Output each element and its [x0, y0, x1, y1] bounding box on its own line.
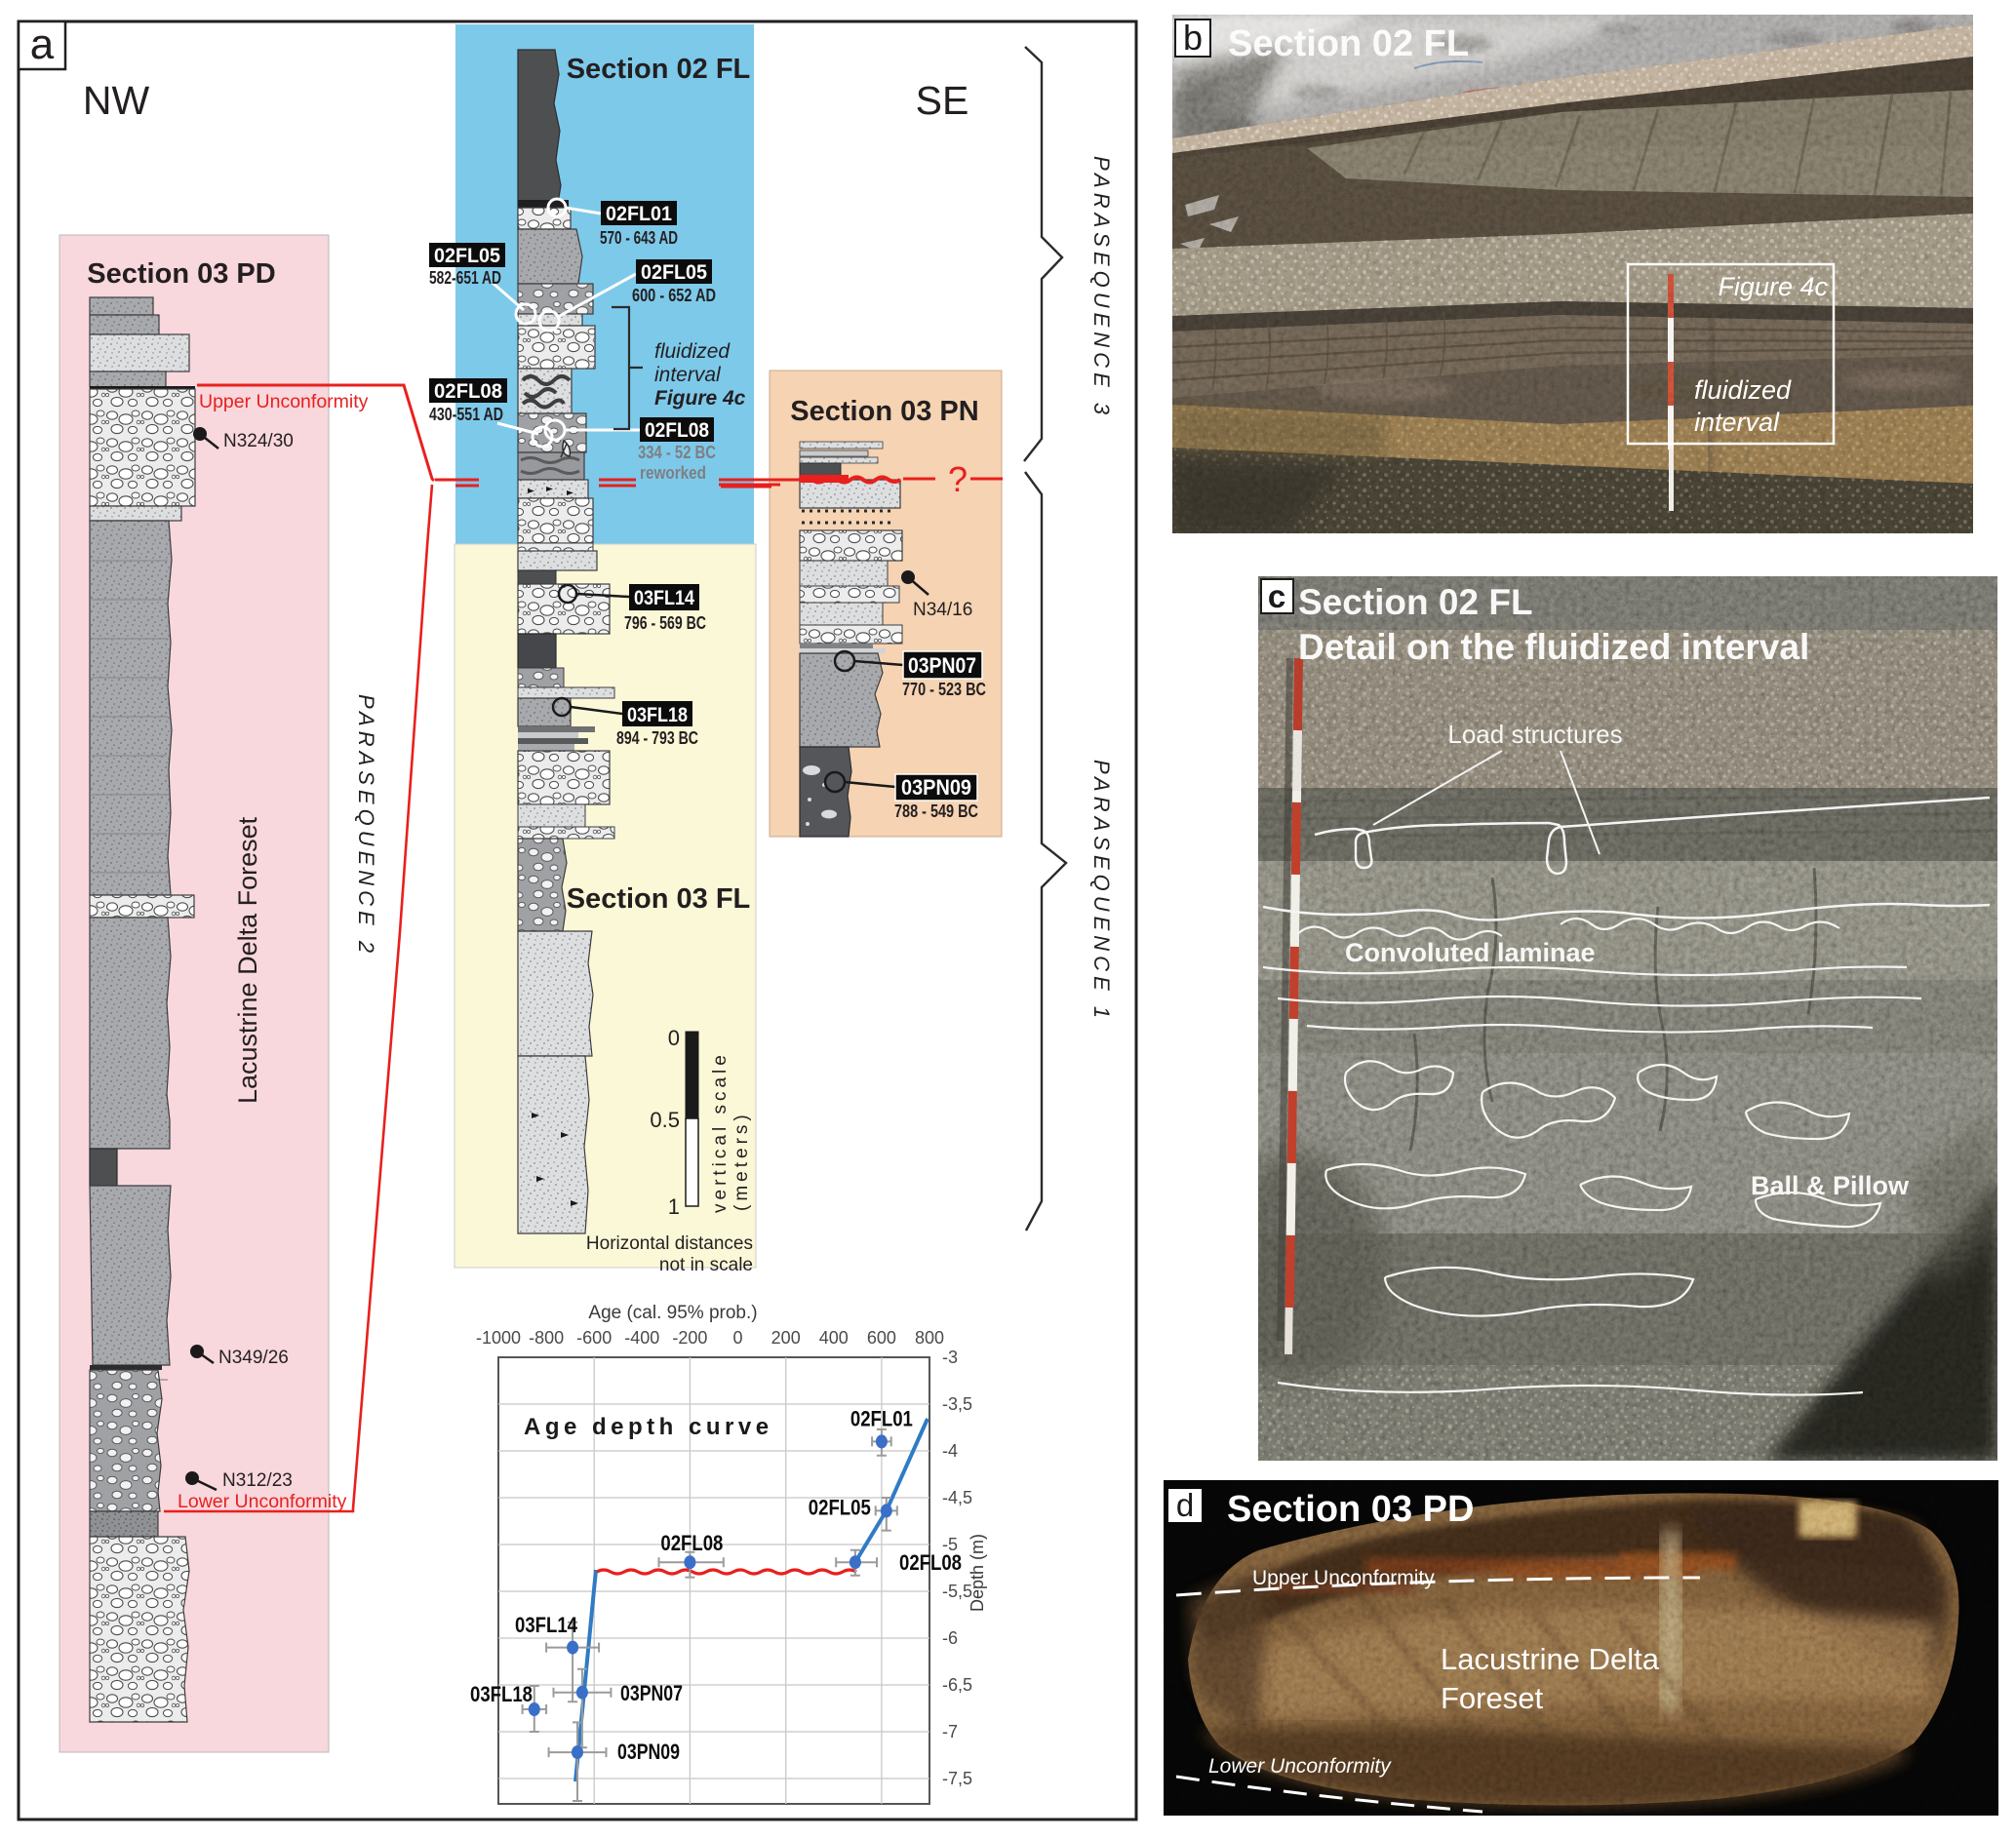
svg-text:03FL14: 03FL14 [634, 587, 694, 609]
svg-text:788 - 549 BC: 788 - 549 BC [894, 802, 978, 821]
svg-text:-3: -3 [942, 1348, 958, 1367]
svg-text:Lower Unconformity: Lower Unconformity [1208, 1755, 1392, 1778]
svg-text:N34/16: N34/16 [913, 600, 972, 620]
svg-text:N324/30: N324/30 [223, 431, 294, 451]
svg-text:Lacustrine Delta Foreset: Lacustrine Delta Foreset [233, 816, 262, 1104]
svg-text:02FL08: 02FL08 [434, 380, 502, 403]
svg-text:reworked: reworked [640, 463, 706, 483]
svg-text:-3,5: -3,5 [942, 1394, 972, 1414]
svg-text:Upper Unconformity: Upper Unconformity [199, 391, 369, 412]
svg-text:430-551 AD: 430-551 AD [429, 405, 503, 424]
svg-text:d: d [1176, 1487, 1194, 1523]
svg-text:Figure 4c: Figure 4c [654, 387, 746, 410]
svg-text:Foreset: Foreset [1441, 1681, 1543, 1715]
svg-text:Age depth curve: Age depth curve [524, 1414, 773, 1440]
svg-text:Section 03 PN: Section 03 PN [790, 396, 978, 427]
svg-text:(meters): (meters) [731, 1111, 752, 1211]
svg-text:0: 0 [668, 1026, 680, 1050]
svg-text:a: a [30, 20, 55, 68]
svg-text:02FL01: 02FL01 [606, 203, 672, 225]
svg-text:Section 02 FL: Section 02 FL [567, 54, 751, 85]
svg-text:03PN07: 03PN07 [908, 653, 976, 678]
svg-text:PARASEQUENCE 3: PARASEQUENCE 3 [1089, 156, 1114, 419]
svg-text:-400: -400 [624, 1328, 659, 1348]
svg-text:02FL05: 02FL05 [641, 261, 707, 284]
svg-text:Age (cal. 95% prob.): Age (cal. 95% prob.) [588, 1303, 757, 1323]
svg-text:Horizontal distances: Horizontal distances [586, 1233, 753, 1254]
svg-text:b: b [1183, 18, 1203, 58]
svg-text:-1000: -1000 [476, 1328, 521, 1348]
svg-text:vertical scale: vertical scale [710, 1051, 731, 1213]
svg-text:Section 02 FL: Section 02 FL [1228, 23, 1469, 64]
svg-text:894 - 793 BC: 894 - 793 BC [616, 728, 698, 748]
svg-text:800: 800 [915, 1328, 944, 1348]
svg-text:02FL05: 02FL05 [809, 1495, 871, 1519]
svg-text:-600: -600 [576, 1328, 612, 1348]
svg-text:600 - 652 AD: 600 - 652 AD [632, 286, 716, 305]
svg-text:?: ? [948, 459, 968, 499]
svg-text:03FL14: 03FL14 [515, 1613, 578, 1637]
svg-text:02FL08: 02FL08 [899, 1550, 962, 1575]
svg-text:582-651 AD: 582-651 AD [429, 268, 501, 288]
svg-text:Figure 4c: Figure 4c [1718, 272, 1828, 301]
svg-text:03PN09: 03PN09 [901, 775, 971, 800]
svg-text:Section 03 PD: Section 03 PD [1227, 1489, 1474, 1530]
svg-text:-800: -800 [529, 1328, 564, 1348]
svg-text:0.5: 0.5 [650, 1108, 680, 1132]
svg-text:fluidized: fluidized [654, 340, 731, 363]
svg-text:400: 400 [819, 1328, 849, 1348]
svg-text:Load structures: Load structures [1447, 720, 1622, 749]
svg-text:-4,5: -4,5 [942, 1488, 972, 1507]
svg-text:interval: interval [654, 364, 722, 386]
svg-text:Ball & Pillow: Ball & Pillow [1751, 1171, 1910, 1200]
svg-text:c: c [1268, 578, 1285, 614]
svg-text:02FL01: 02FL01 [850, 1406, 913, 1430]
svg-text:0: 0 [732, 1328, 742, 1348]
svg-text:570 - 643 AD: 570 - 643 AD [600, 228, 678, 248]
svg-text:03FL18: 03FL18 [627, 704, 688, 726]
svg-text:Lacustrine Delta: Lacustrine Delta [1441, 1642, 1660, 1676]
svg-text:-200: -200 [672, 1328, 707, 1348]
svg-text:770 - 523 BC: 770 - 523 BC [902, 680, 986, 699]
svg-text:-7,5: -7,5 [942, 1769, 972, 1788]
svg-text:Lower Unconformity: Lower Unconformity [178, 1491, 347, 1512]
svg-text:03PN07: 03PN07 [620, 1681, 683, 1705]
svg-text:02FL05: 02FL05 [434, 245, 500, 267]
svg-text:-4: -4 [942, 1441, 958, 1461]
svg-text:Depth (m): Depth (m) [968, 1534, 987, 1612]
svg-text:SE: SE [916, 78, 969, 123]
svg-text:03PN09: 03PN09 [617, 1740, 680, 1764]
svg-text:Convoluted laminae: Convoluted laminae [1345, 938, 1596, 967]
svg-text:-7: -7 [942, 1722, 958, 1741]
svg-text:796 - 569 BC: 796 - 569 BC [624, 613, 706, 633]
svg-text:N312/23: N312/23 [222, 1470, 293, 1491]
svg-text:-6,5: -6,5 [942, 1675, 972, 1695]
svg-text:Section 03 FL: Section 03 FL [567, 883, 751, 915]
svg-text:fluidized: fluidized [1694, 375, 1792, 405]
svg-text:334 - 52 BC: 334 - 52 BC [638, 443, 716, 462]
svg-text:PARASEQUENCE 2: PARASEQUENCE 2 [354, 694, 378, 958]
svg-text:02FL08: 02FL08 [645, 419, 709, 442]
svg-text:02FL08: 02FL08 [660, 1531, 723, 1555]
svg-text:Upper Unconformity: Upper Unconformity [1252, 1567, 1435, 1589]
svg-text:PARASEQUENCE 1: PARASEQUENCE 1 [1089, 760, 1114, 1023]
svg-text:-6: -6 [942, 1628, 958, 1648]
svg-text:interval: interval [1694, 408, 1780, 437]
svg-text:N349/26: N349/26 [218, 1348, 289, 1368]
svg-text:Section 02 FL: Section 02 FL [1298, 582, 1533, 622]
svg-text:1: 1 [668, 1194, 680, 1219]
svg-text:Section 03 PD: Section 03 PD [87, 258, 275, 290]
svg-text:600: 600 [867, 1328, 896, 1348]
svg-text:200: 200 [771, 1328, 801, 1348]
svg-text:03FL18: 03FL18 [470, 1682, 533, 1706]
svg-text:not in scale: not in scale [659, 1255, 753, 1275]
svg-text:NW: NW [83, 78, 150, 123]
svg-text:Detail on the fluidized interv: Detail on the fluidized interval [1298, 627, 1809, 667]
